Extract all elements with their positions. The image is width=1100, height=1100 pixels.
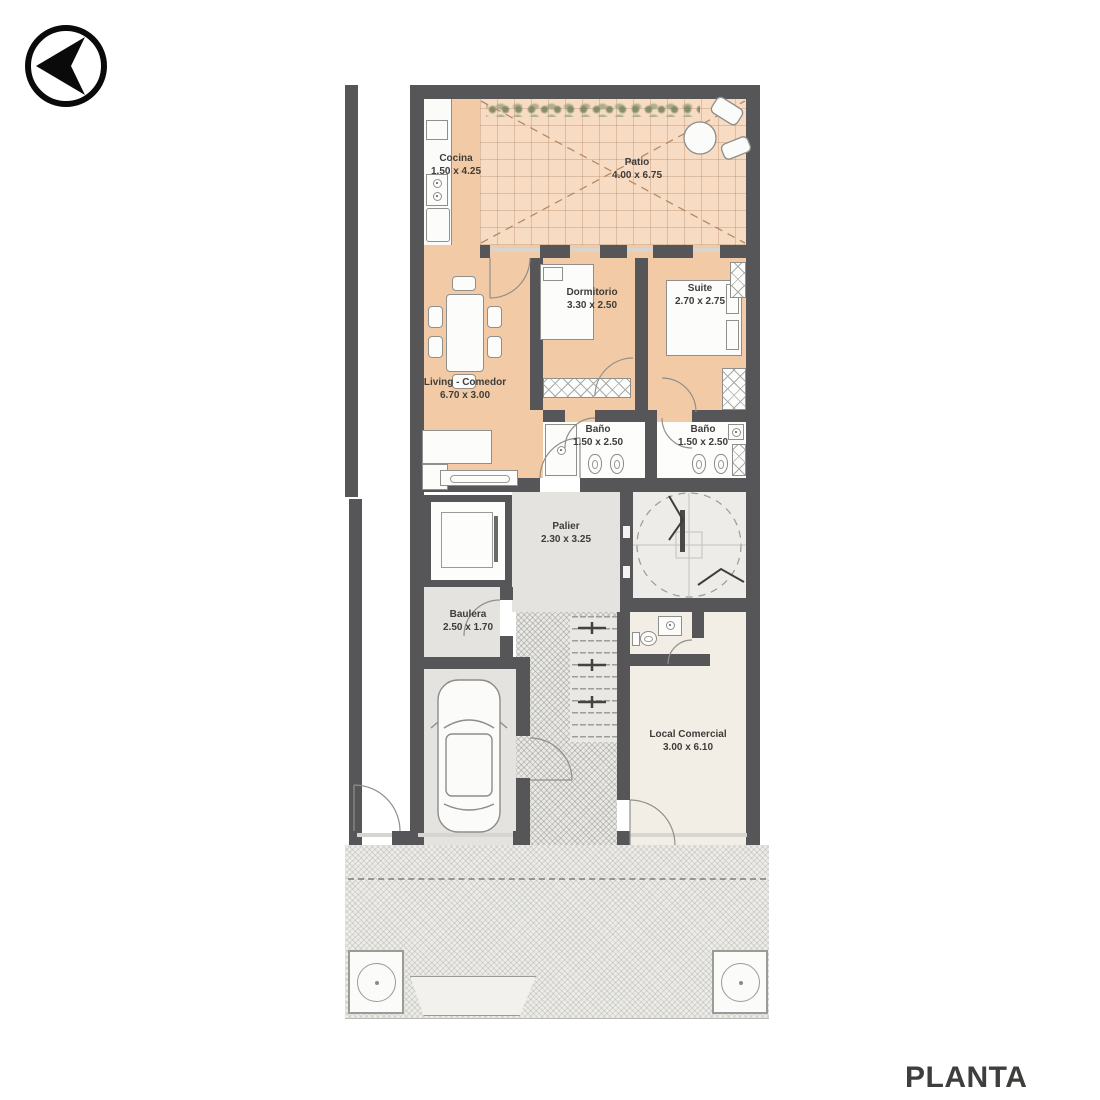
room-dims: 2.50 x 1.70 <box>443 621 493 634</box>
chair <box>428 306 443 328</box>
wall-corridor-local <box>617 612 630 800</box>
wall-between-banos <box>645 422 657 478</box>
wall-baulera-right <box>500 636 513 657</box>
interior-wall <box>543 410 565 422</box>
room-dims: 6.70 x 3.00 <box>424 389 506 402</box>
interior-wall <box>720 245 760 258</box>
bidet-icon <box>610 454 624 474</box>
interior-wall <box>692 410 746 422</box>
room-dims: 2.70 x 2.75 <box>675 295 725 308</box>
exterior-wall-top <box>410 85 760 99</box>
interior-wall <box>540 245 570 258</box>
kitchen-range-icon <box>426 120 448 140</box>
closet-suite <box>730 262 746 298</box>
wall-garage-corridor <box>516 669 530 736</box>
chair <box>428 336 443 358</box>
stairwell-floor <box>633 492 746 598</box>
wall-palier-stair <box>620 492 633 598</box>
room-dims: 1.50 x 2.50 <box>573 436 623 449</box>
pillow <box>726 320 739 350</box>
room-dims: 3.30 x 2.50 <box>566 299 617 312</box>
threshold <box>357 833 392 837</box>
room-name: Baulera <box>443 608 493 621</box>
wall-baulera-bottom <box>424 657 530 669</box>
facade-pier <box>747 831 760 845</box>
wardrobe-dormitorio <box>543 378 631 398</box>
room-name: Palier <box>541 520 591 533</box>
wall-stair-bottom <box>620 598 760 612</box>
room-name: Suite <box>675 282 725 295</box>
wall-niche <box>623 566 630 578</box>
wall-niche <box>623 526 630 538</box>
wall-baulera-right <box>500 587 513 600</box>
burner-icon <box>433 192 442 201</box>
room-dims: 3.00 x 6.10 <box>649 741 726 754</box>
exterior-wall-right <box>746 85 760 845</box>
shower-drain-icon <box>557 446 566 455</box>
chair <box>487 306 502 328</box>
facade-pier <box>392 831 418 845</box>
pillow <box>543 267 563 281</box>
stair-treads <box>570 616 617 742</box>
elevator-door <box>494 516 498 562</box>
facade-pier <box>617 831 630 845</box>
interior-wall <box>595 410 657 422</box>
tree-icon <box>721 963 760 1002</box>
toilet-icon <box>640 631 657 646</box>
driveway-ramp <box>410 976 536 1016</box>
bath-cabinet <box>732 444 746 476</box>
wall-dormitorio-suite <box>635 258 648 410</box>
interior-wall <box>580 478 746 492</box>
sideboard-detail <box>450 475 510 483</box>
toilet-icon <box>692 454 706 474</box>
sidewalk <box>345 845 769 1019</box>
room-label-patio: Patio 4.00 x 6.75 <box>612 156 662 182</box>
north-arrow-icon <box>22 22 110 110</box>
tree-planter-right <box>712 950 768 1014</box>
room-label-bano1: Baño 1.50 x 2.50 <box>573 423 623 449</box>
wall-local-bath <box>630 654 710 666</box>
room-dims: 1.50 x 2.50 <box>678 436 728 449</box>
room-name: Patio <box>612 156 662 169</box>
room-label-bano2: Baño 1.50 x 2.50 <box>678 423 728 449</box>
room-label-local: Local Comercial 3.00 x 6.10 <box>649 728 726 754</box>
room-dims: 2.30 x 3.25 <box>541 533 591 546</box>
room-name: Baño <box>573 423 623 436</box>
tree-planter-left <box>348 950 404 1014</box>
room-name: Local Comercial <box>649 728 726 741</box>
toilet-icon <box>588 454 602 474</box>
local-threshold <box>630 833 747 837</box>
chair <box>452 276 476 291</box>
floor-plan: Cocina 1.50 x 4.25 Patio 4.00 x 6.75 Dor… <box>340 80 772 1040</box>
wall-local-bath <box>692 612 704 638</box>
garage-threshold <box>418 833 513 837</box>
kitchen-cabinet <box>426 208 450 242</box>
interior-wall <box>653 245 693 258</box>
burner-icon <box>433 179 442 188</box>
tree-icon <box>357 963 396 1002</box>
page-title: PLANTA BAJA <box>905 1061 1100 1100</box>
room-name: Baño <box>678 423 728 436</box>
room-label-cocina: Cocina 1.50 x 4.25 <box>431 152 481 178</box>
sink-drain-icon <box>666 621 675 630</box>
property-line <box>348 878 766 880</box>
interior-wall <box>480 245 490 258</box>
bidet-icon <box>714 454 728 474</box>
room-label-dormitorio: Dormitorio 3.30 x 2.50 <box>566 286 617 312</box>
facade-pier <box>513 831 530 845</box>
toilet-tank <box>632 632 640 646</box>
room-label-palier: Palier 2.30 x 3.25 <box>541 520 591 546</box>
interior-wall <box>600 245 627 258</box>
dining-table <box>446 294 484 372</box>
wardrobe-suite <box>722 368 746 410</box>
room-label-suite: Suite 2.70 x 2.75 <box>675 282 725 308</box>
room-garage-floor <box>424 669 516 845</box>
room-label-baulera: Baulera 2.50 x 1.70 <box>443 608 493 634</box>
chair <box>487 336 502 358</box>
sink-drain-icon <box>732 428 741 437</box>
plants-row-icon <box>486 101 700 117</box>
neighbor-wall <box>345 85 358 497</box>
room-name: Cocina <box>431 152 481 165</box>
neighbor-wall <box>349 499 362 845</box>
room-name: Dormitorio <box>566 286 617 299</box>
room-label-living: Living - Comedor 6.70 x 3.00 <box>424 376 506 402</box>
sofa <box>422 430 492 464</box>
room-dims: 4.00 x 6.75 <box>612 169 662 182</box>
room-name: Living - Comedor <box>424 376 506 389</box>
elevator-cab <box>441 512 493 568</box>
room-palier-floor <box>512 492 620 612</box>
room-dims: 1.50 x 4.25 <box>431 165 481 178</box>
